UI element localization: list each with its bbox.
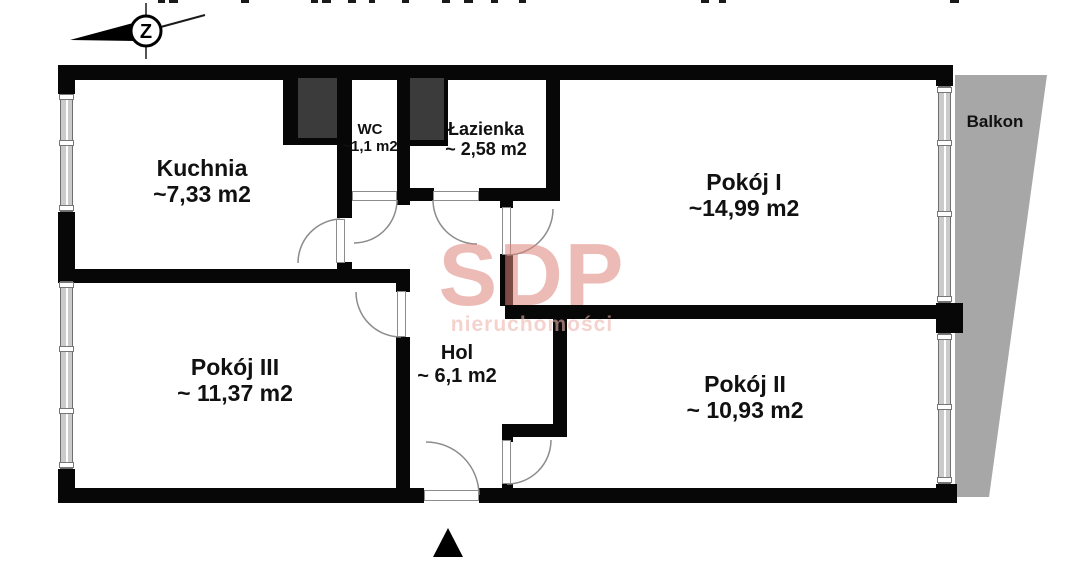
door-arc-room1	[507, 209, 553, 255]
compass-needle	[70, 22, 137, 41]
room-label-hol: Hol ~ 6,1 m2	[417, 342, 497, 388]
room-label-wc: WC ~1,1 m2	[342, 121, 397, 155]
room-label-pokoj-3: Pokój III ~ 11,37 m2	[177, 354, 293, 406]
room-label-kuchnia: Kuchnia ~7,33 m2	[153, 155, 251, 207]
room-label-pokoj-2: Pokój II ~ 10,93 m2	[686, 371, 803, 423]
room-name: Balkon	[967, 112, 1024, 132]
room-area: ~ 6,1 m2	[417, 365, 497, 388]
room-name: Pokój III	[177, 354, 293, 380]
room-area: ~1,1 m2	[342, 138, 397, 155]
room-name: Łazienka	[445, 119, 527, 139]
room-area: ~7,33 m2	[153, 181, 251, 207]
door-arc-entrance	[426, 442, 479, 495]
north-compass: Z	[70, 3, 205, 59]
plan-overlay: Z	[0, 0, 1092, 562]
room-area: ~14,99 m2	[689, 195, 800, 221]
door-arc-kitchen	[298, 219, 340, 263]
door-arc-room2	[507, 440, 551, 484]
door-arc-room3	[356, 292, 401, 337]
room-area: ~ 10,93 m2	[686, 397, 803, 423]
room-label-balkon: Balkon	[967, 112, 1024, 132]
room-name: Hol	[417, 342, 497, 365]
room-area: ~ 11,37 m2	[177, 380, 293, 406]
door-arc-wc	[354, 200, 397, 243]
room-label-lazienka: Łazienka ~ 2,58 m2	[445, 119, 527, 159]
compass-direction-letter: Z	[140, 21, 152, 43]
room-name: WC	[342, 121, 397, 138]
door-arc-bath	[433, 200, 477, 244]
room-area: ~ 2,58 m2	[445, 139, 527, 159]
room-name: Kuchnia	[153, 155, 251, 181]
room-label-pokoj-1: Pokój I ~14,99 m2	[689, 169, 800, 221]
room-name: Pokój II	[686, 371, 803, 397]
room-name: Pokój I	[689, 169, 800, 195]
floor-plan-canvas: Z Kuchnia ~7,33 m2 WC ~1,1 m2 Łazienka ~…	[0, 0, 1092, 562]
